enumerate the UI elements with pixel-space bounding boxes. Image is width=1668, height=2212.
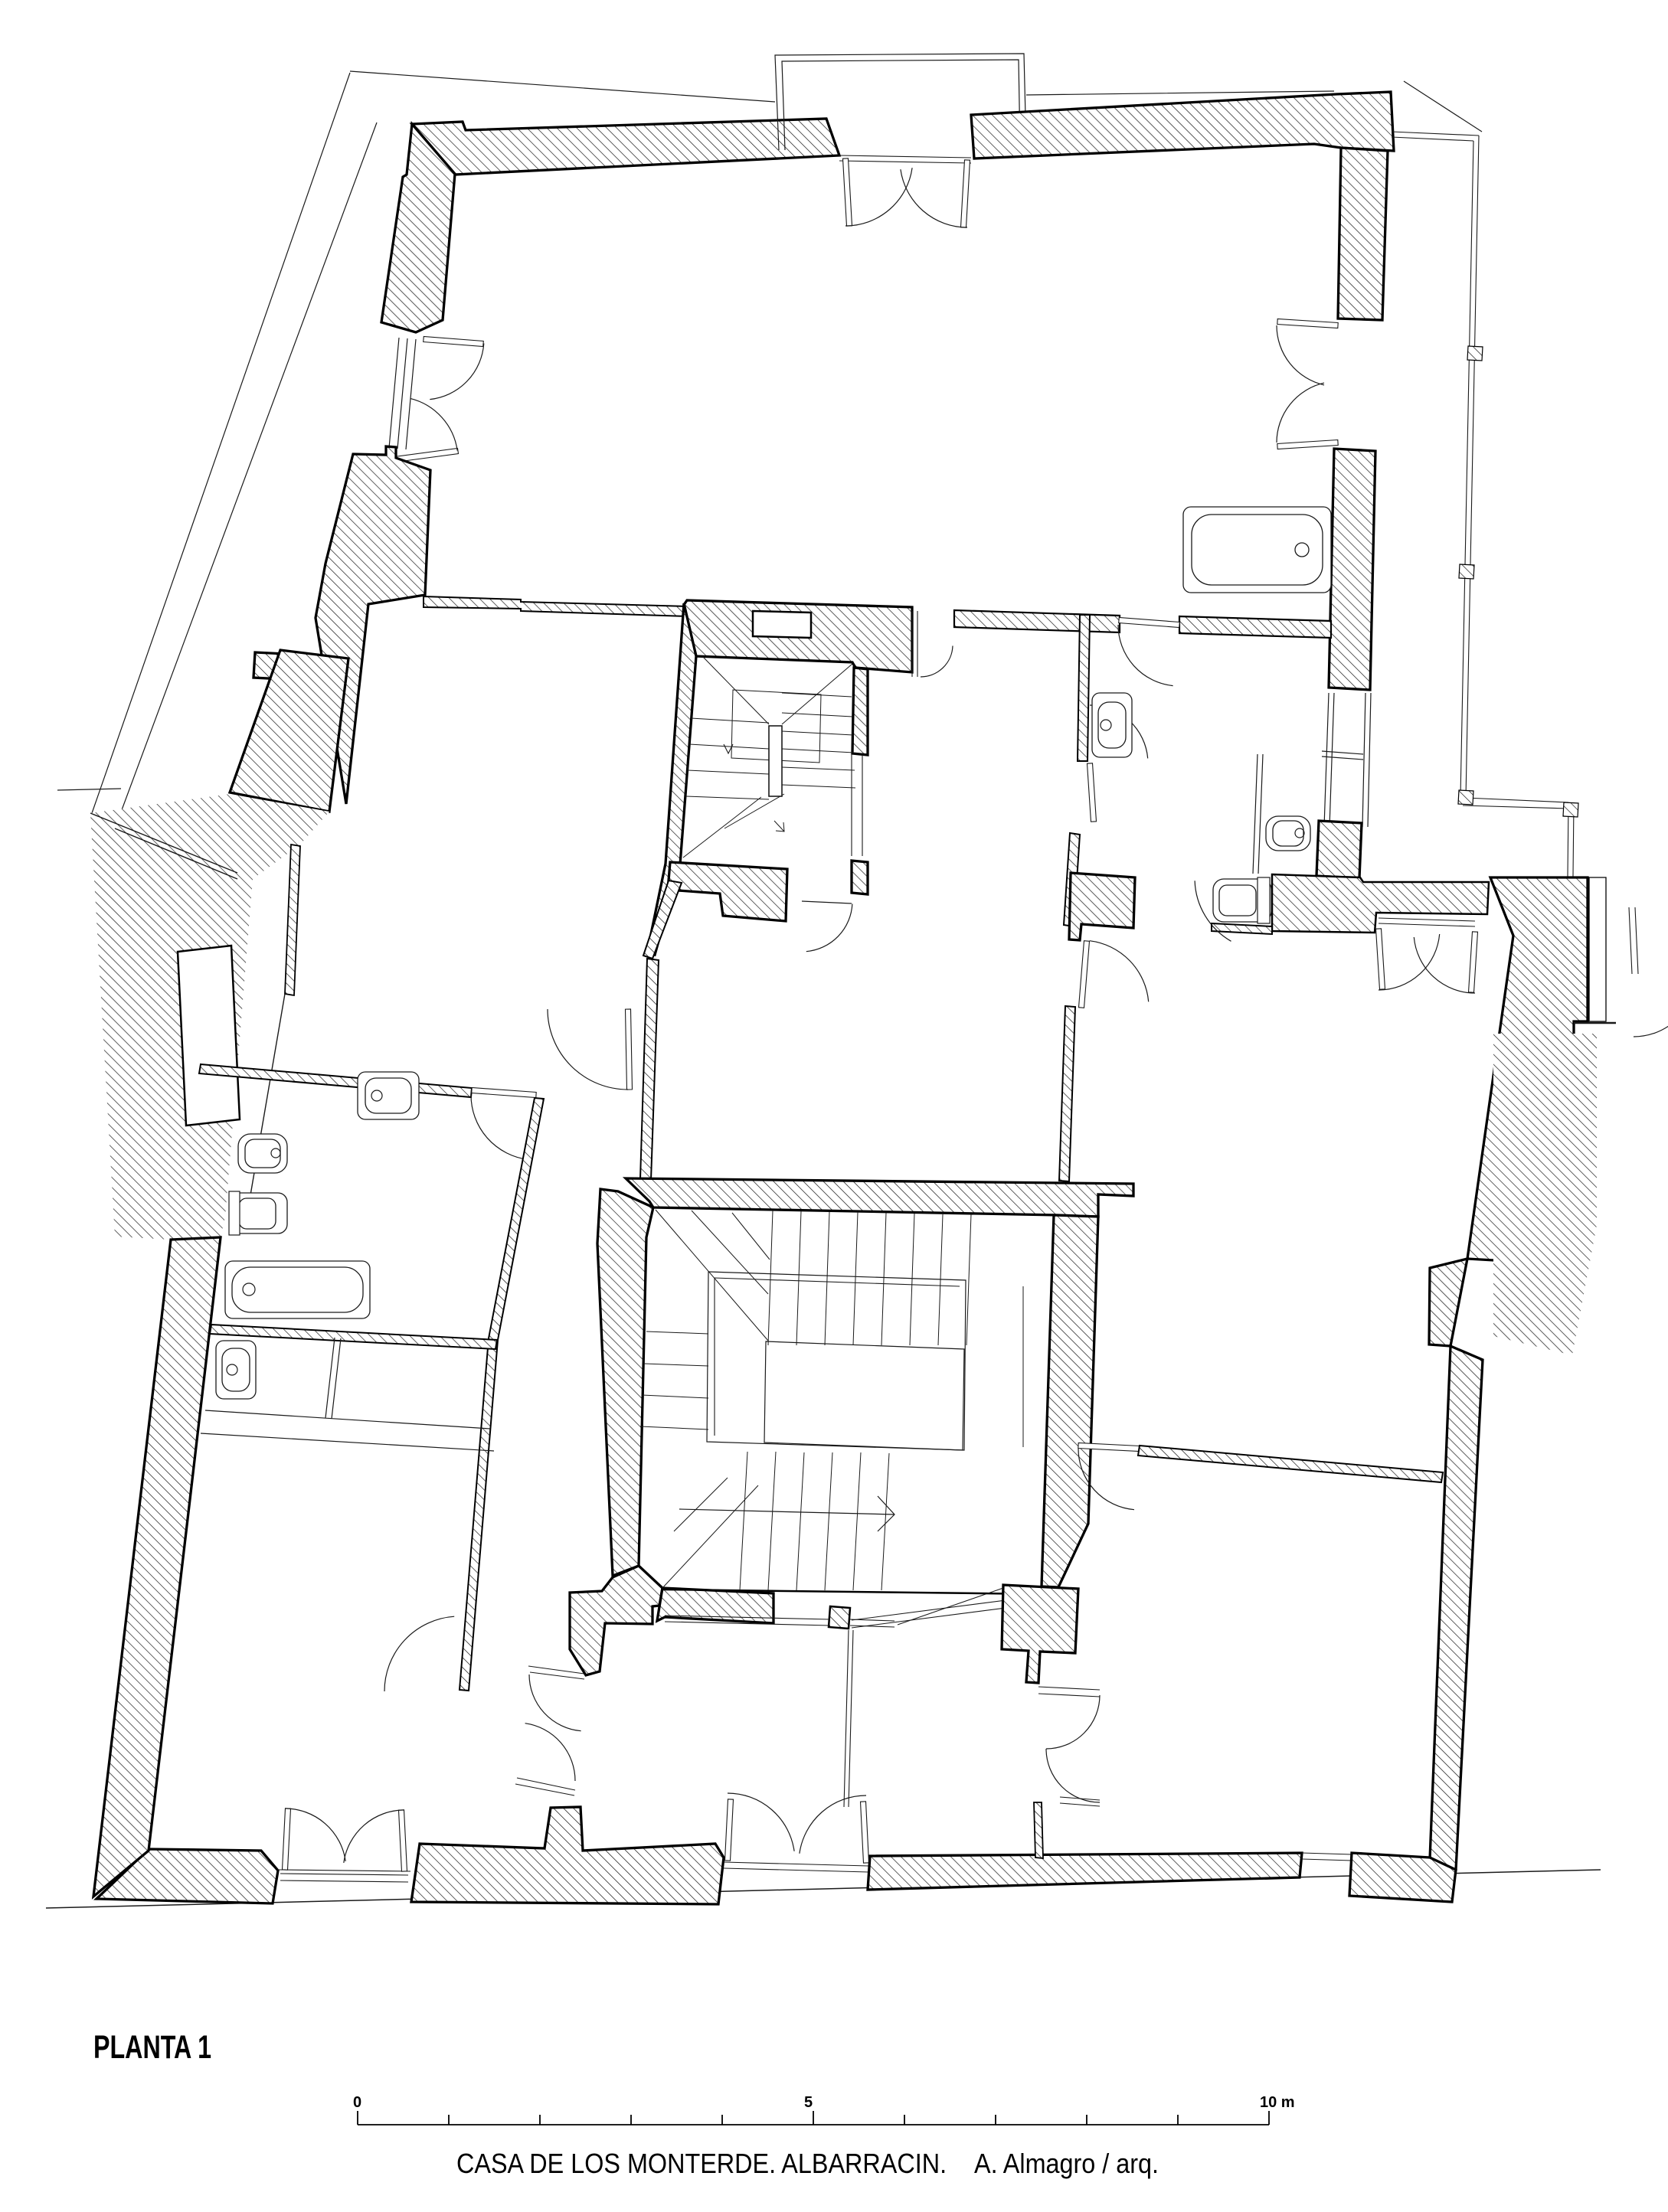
svg-text:0: 0 — [353, 2094, 361, 2111]
svg-text:CASA DE LOS MONTERDE. ALBARRAC: CASA DE LOS MONTERDE. ALBARRACIN. A. Alm… — [456, 2148, 1159, 2179]
svg-text:10 m: 10 m — [1260, 2094, 1295, 2111]
svg-text:5: 5 — [804, 2094, 813, 2111]
svg-text:PLANTA 1: PLANTA 1 — [93, 2029, 211, 2066]
